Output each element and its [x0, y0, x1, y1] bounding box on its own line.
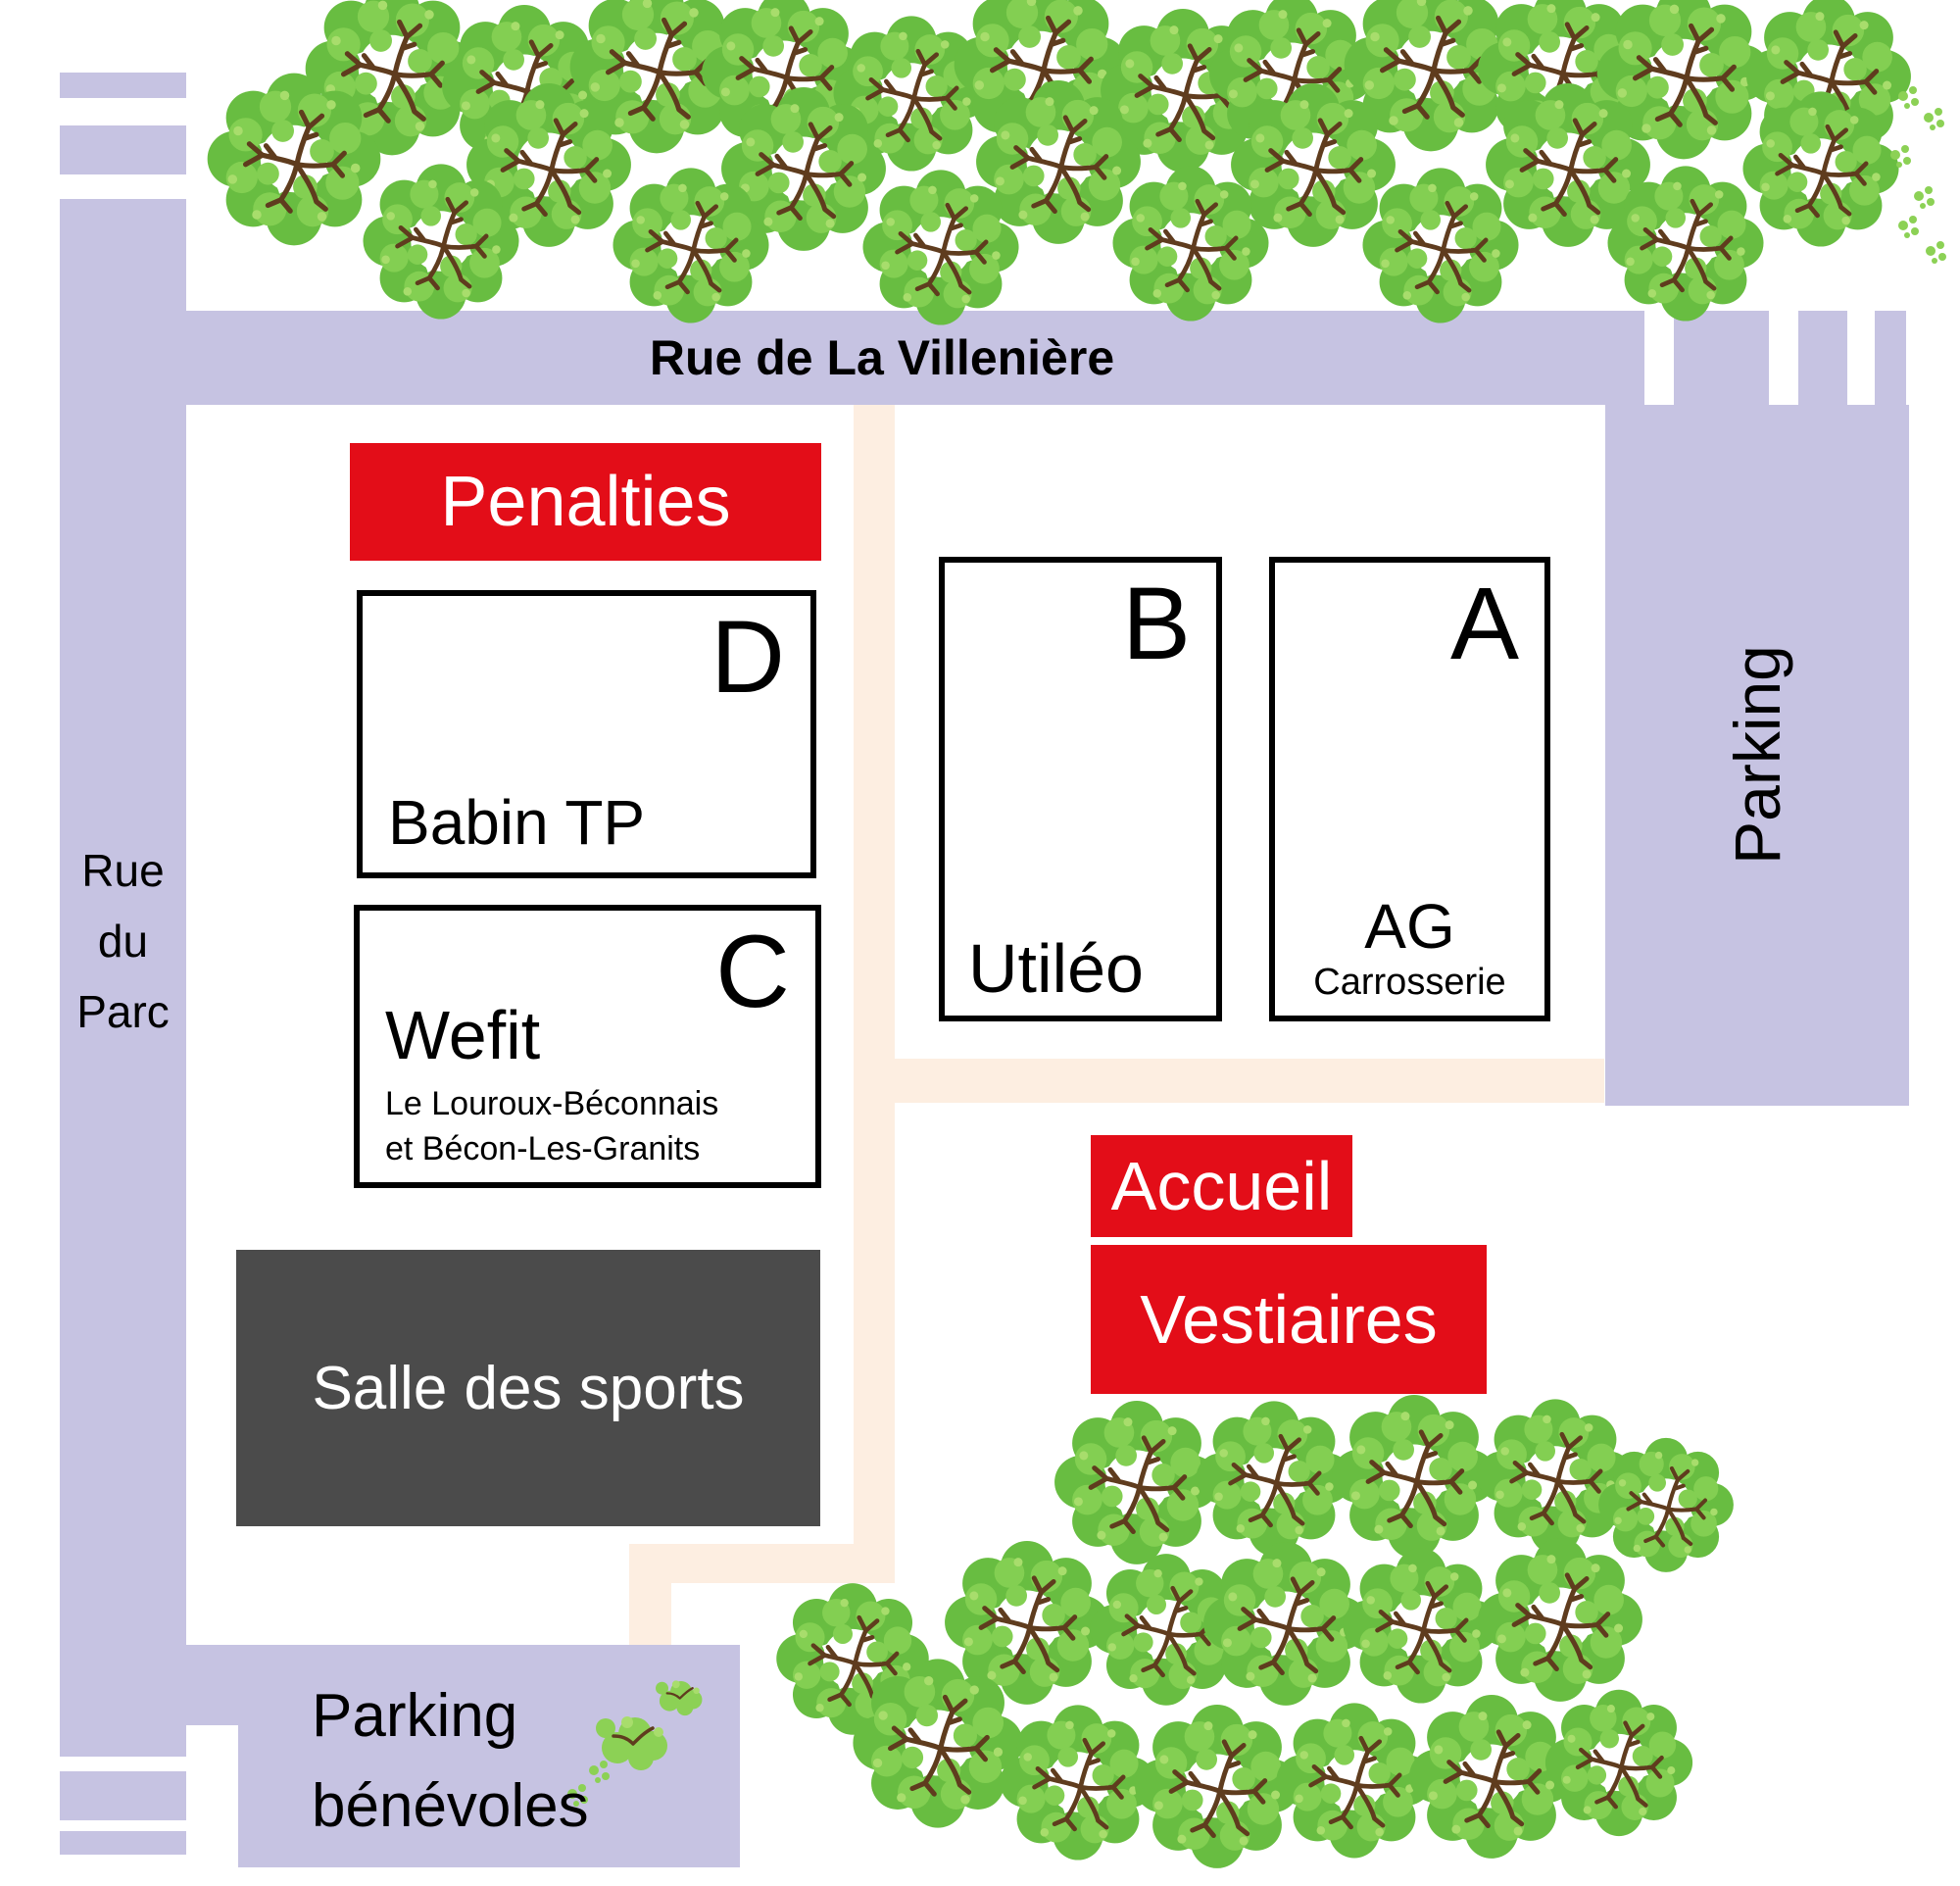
tree-icon — [1112, 166, 1268, 321]
tree-icon — [1135, 1705, 1299, 1868]
rue-du-parc-label: Rue du Parc — [60, 835, 186, 1047]
parking-benevoles-label: Parking bénévoles — [312, 1671, 589, 1852]
rue-du-parc-dash-top-1 — [60, 73, 186, 98]
building-a-sub: Carrosserie — [1275, 961, 1544, 1006]
tree-icon — [721, 87, 886, 251]
tree-icon — [1090, 1554, 1242, 1706]
footpath-vertical — [854, 405, 895, 1583]
rue-du-parc-line-2: du — [60, 906, 186, 976]
sprig-icon — [1914, 186, 1935, 209]
parking-benevoles-line-1: Parking — [312, 1671, 589, 1762]
road-connector — [93, 1645, 238, 1725]
building-d: D Babin TP — [357, 590, 816, 878]
tree-icon — [1196, 1401, 1351, 1556]
tree-icon — [1345, 0, 1518, 151]
tree-icon — [612, 168, 768, 323]
tree-icon — [1209, 0, 1374, 157]
tree-icon — [702, 0, 866, 155]
tree-icon — [442, 5, 607, 169]
tree-icon — [1231, 83, 1396, 247]
parking-benevoles-line-2: bénévoles — [312, 1762, 589, 1852]
tree-icon — [1478, 1538, 1642, 1702]
building-b-letter: B — [1122, 571, 1191, 678]
tree-icon — [1486, 83, 1650, 247]
tree-icon — [1598, 1438, 1734, 1572]
footpath-elbow-vertical — [629, 1544, 671, 1645]
road-gap-stripe-2 — [1769, 311, 1798, 405]
salle-des-sports-label: Salle des sports — [312, 1354, 744, 1423]
site-map-canvas: Rue de La Villenière Rue du Parc Parking… — [0, 0, 1960, 1886]
tree-icon — [1409, 1695, 1574, 1859]
rue-villeniere-label: Rue de La Villenière — [588, 329, 1176, 386]
road-gap-stripe-3 — [1847, 311, 1875, 405]
tree-icon — [363, 164, 518, 319]
building-c: C Wefit Le Louroux-Béconnais et Bécon-Le… — [354, 905, 821, 1188]
building-d-letter: D — [710, 604, 785, 712]
building-c-sub-1: Le Louroux-Béconnais — [385, 1082, 718, 1127]
building-a-name: AG — [1275, 892, 1544, 961]
tree-icon — [570, 0, 744, 153]
salle-des-sports: Salle des sports — [236, 1250, 820, 1526]
tree-icon — [1746, 0, 1911, 159]
tree-icon — [466, 83, 631, 247]
tree-icon — [1477, 1399, 1633, 1554]
penalties-banner: Penalties — [350, 443, 821, 561]
tree-icon — [976, 80, 1141, 244]
parking-right-label: Parking — [1561, 559, 1953, 951]
tree-icon — [1597, 0, 1771, 159]
building-c-name: Wefit — [385, 996, 718, 1074]
sprig-icon — [1926, 241, 1946, 264]
tree-icon — [1607, 166, 1763, 321]
rue-du-parc-line-1: Rue — [60, 835, 186, 906]
tree-icon — [853, 1659, 1022, 1827]
tree-icon — [1343, 1548, 1498, 1703]
tree-icon — [955, 0, 1128, 151]
tree-icon — [862, 170, 1018, 324]
building-d-name: Babin TP — [388, 786, 645, 859]
tree-icon — [306, 0, 479, 155]
building-b-name: Utiléo — [968, 929, 1144, 1008]
sprig-icon — [1898, 86, 1919, 109]
tree-icon — [1054, 1401, 1219, 1564]
building-a-letter: A — [1450, 571, 1519, 678]
tree-icon — [1203, 1542, 1368, 1706]
tree-icon — [1742, 91, 1898, 246]
footpath-horizontal-band — [854, 1059, 1604, 1103]
sprig-icon — [1898, 216, 1919, 238]
sprig-icon — [1890, 145, 1911, 168]
accueil-banner: Accueil — [1091, 1135, 1352, 1237]
building-b: B Utiléo — [939, 557, 1222, 1021]
tree-icon — [208, 74, 381, 246]
tree-icon — [1332, 1395, 1496, 1559]
building-c-letter: C — [715, 918, 790, 1026]
tree-icon — [1000, 1705, 1155, 1860]
rue-du-parc-dash-bottom-1 — [60, 1771, 186, 1820]
tree-icon — [776, 1583, 928, 1735]
tree-icon — [1276, 1703, 1432, 1858]
rue-du-parc-line-3: Parc — [60, 976, 186, 1047]
building-a: A AG Carrosserie — [1269, 557, 1550, 1021]
tree-icon — [945, 1541, 1109, 1705]
rue-du-parc-dash-top-2 — [60, 125, 186, 174]
tree-icon — [1478, 0, 1642, 151]
vestiaires-banner: Vestiaires — [1091, 1245, 1487, 1394]
tree-icon — [1362, 168, 1518, 323]
tree-icon — [1101, 9, 1265, 173]
road-gap-stripe-1 — [1644, 311, 1674, 405]
tree-icon — [833, 16, 989, 171]
sprig-icon — [1924, 108, 1944, 130]
building-c-sub-2: et Bécon-Les-Granits — [385, 1127, 718, 1172]
tree-icon — [1545, 1690, 1692, 1836]
rue-du-parc-dash-bottom-2 — [60, 1831, 186, 1855]
